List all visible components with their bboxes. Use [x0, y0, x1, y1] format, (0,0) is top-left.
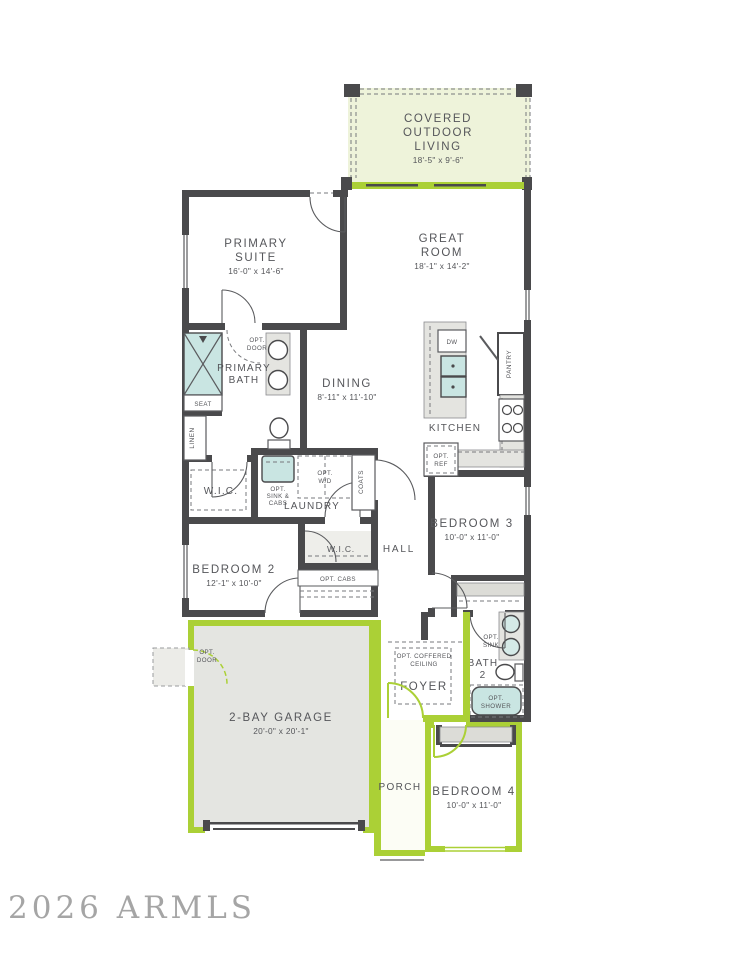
- opt-sink-cabs-2: SINK &: [267, 493, 290, 500]
- great-room-label-2: ROOM: [421, 247, 463, 259]
- bath-2-label-2: 2: [480, 670, 487, 681]
- dining-label: DINING: [322, 378, 372, 390]
- foyer-label: FOYER: [400, 681, 448, 693]
- opt-ref-label-2: REF: [434, 461, 448, 468]
- kitchen-counter-bottom: [458, 450, 524, 467]
- window-great-room: [526, 290, 529, 320]
- col-label-1: COVERED: [404, 113, 472, 125]
- bedroom-3-dims: 10'-0" x 11'-0": [445, 532, 500, 542]
- armls-watermark: 2026 ARMLS: [8, 890, 256, 926]
- floor-plan-drawing: COVERED OUTDOOR LIVING 18'-5" x 9'-6": [0, 0, 741, 953]
- kitchen: DW PANTRY OPT. REF KITCHEN: [424, 322, 524, 476]
- bedroom-2-label: BEDROOM 2: [192, 564, 275, 576]
- stove: [499, 399, 524, 441]
- opt-door-landing: [153, 648, 189, 686]
- linen-label: LINEN: [189, 427, 196, 448]
- opt-door-opening: [185, 650, 194, 686]
- primary-suite-dims: 16'-0" x 14'-6": [228, 266, 284, 276]
- suite-door-arc: [222, 290, 255, 323]
- wic-primary: W.I.C.: [191, 462, 247, 510]
- opt-cabs-label: OPT. CABS: [320, 576, 356, 583]
- sink-icon: [269, 371, 288, 390]
- hall-label: HALL: [383, 544, 415, 555]
- dining: DINING 8'-11" x 11'-10": [317, 378, 376, 402]
- garage-opt-door-label-1: OPT.: [199, 649, 214, 656]
- laundry-label: LAUNDRY: [284, 501, 340, 512]
- great-room-dims: 18'-1" x 14'-2": [414, 261, 470, 271]
- seat-label: SEAT: [194, 401, 211, 408]
- garage-dims: 20'-0" x 20'-1": [253, 726, 309, 736]
- opt-wd-label-1: OPT.: [317, 470, 332, 477]
- window-bedroom-3: [526, 487, 529, 515]
- primary-bath: SEAT LINEN OPT. DOOR PRIMARY BATH: [184, 330, 290, 460]
- primary-suite-label-2: SUITE: [235, 252, 277, 264]
- bedroom-3: BEDROOM 3 10'-0" x 11'-0": [430, 518, 524, 608]
- toilet-icon: [270, 418, 288, 438]
- opt-sink-cabs-1: OPT.: [270, 486, 285, 493]
- laundry: OPT. SINK & CABS OPT. W/D LAUNDRY COATS: [262, 455, 415, 517]
- opt-shower-label-2: SHOWER: [481, 703, 511, 710]
- great-room-label-1: GREAT: [419, 233, 466, 245]
- primary-suite-label-1: PRIMARY: [224, 238, 287, 250]
- window-bedroom-2: [184, 545, 187, 598]
- col-label-3: LIVING: [414, 141, 461, 153]
- sink-icon: [269, 341, 288, 360]
- toilet-tank: [515, 664, 523, 681]
- bedroom-3-closet-shelf: [457, 583, 524, 596]
- primary-bath-label-2: BATH: [229, 375, 260, 386]
- kitchen-label: KITCHEN: [429, 423, 481, 434]
- laundry-sink: [262, 456, 294, 482]
- bedroom-3-label: BEDROOM 3: [430, 518, 513, 530]
- coats-label: COATS: [358, 470, 365, 494]
- garage-door: [207, 822, 361, 825]
- pantry-label: PANTRY: [506, 350, 513, 379]
- opt-door-label-2: DOOR: [247, 345, 267, 352]
- pantry-door: [480, 336, 498, 360]
- primary-suite: PRIMARY SUITE 16'-0" x 14'-6": [222, 193, 345, 323]
- toilet-icon: [496, 665, 514, 680]
- bedroom-4-closet-shelf: [440, 727, 512, 742]
- garage-opt-door-label-2: DOOR: [197, 657, 217, 664]
- toilet-tank: [268, 440, 290, 449]
- great-room: GREAT ROOM 18'-1" x 14'-2": [414, 233, 470, 271]
- opt-shower-label-1: OPT.: [488, 695, 503, 702]
- wic-2-label: W.I.C.: [327, 544, 355, 554]
- patio-door-arc: [310, 197, 345, 232]
- wic-primary-label: W.I.C.: [204, 486, 238, 497]
- porch-label: PORCH: [378, 782, 421, 793]
- opt-coffered-label-2: CEILING: [410, 661, 438, 668]
- bedroom-4-dims: 10'-0" x 11'-0": [447, 800, 502, 810]
- floor-plan-page: COVERED OUTDOOR LIVING 18'-5" x 9'-6": [0, 0, 741, 953]
- bedroom-2-door-arc: [265, 578, 300, 613]
- bedroom-4: BEDROOM 4 10'-0" x 11'-0": [431, 722, 522, 852]
- garage-label: 2-BAY GARAGE: [229, 712, 333, 724]
- opt-sink-label-1: OPT.: [483, 634, 498, 641]
- opt-ref-label-1: OPT.: [433, 453, 448, 460]
- bedroom-2: BEDROOM 2 12'-1" x 10'-0" W.I.C. OPT. CA…: [192, 531, 378, 613]
- col-label-2: OUTDOOR: [403, 127, 473, 139]
- window-primary-suite: [184, 235, 187, 288]
- bath-2: OPT. SINK BATH 2 OPT. SHOWER: [468, 612, 524, 717]
- bedroom-2-dims: 12'-1" x 10'-0": [206, 578, 262, 588]
- coats-door-arc: [375, 460, 415, 500]
- opt-coffered-label-1: OPT. COFFERED: [397, 653, 452, 660]
- col-dims: 18'-5" x 9'-6": [413, 155, 464, 165]
- opt-wd-label-2: W/D: [318, 478, 331, 485]
- bedroom-4-label: BEDROOM 4: [432, 786, 515, 798]
- dw-label: DW: [446, 339, 457, 346]
- opt-door-label-1: OPT.: [249, 337, 264, 344]
- bath-2-label-1: BATH: [468, 658, 499, 669]
- primary-bath-label-1: PRIMARY: [217, 363, 271, 374]
- dining-dims: 8'-11" x 11'-10": [317, 392, 376, 402]
